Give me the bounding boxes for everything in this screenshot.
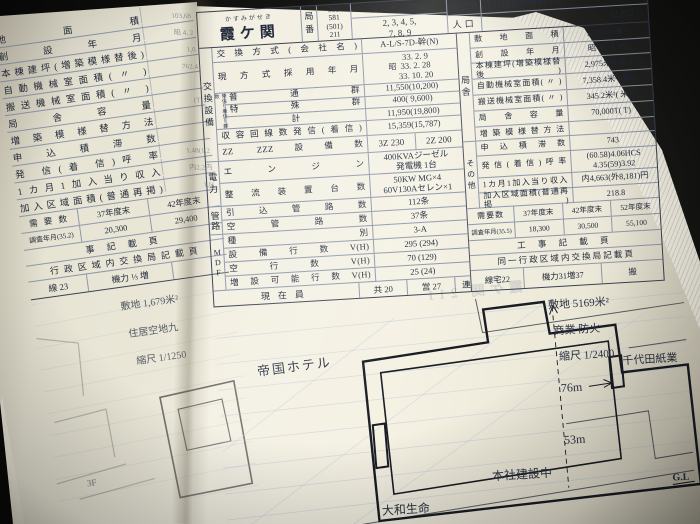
row-label: 局 舎 容 量 — [475, 109, 568, 123]
ground-level-label: G.L — [672, 472, 690, 484]
floor-label: 3F — [86, 477, 97, 488]
record-body: 交換設備 交換方式(会社名) A-L/S-7D-幹(N) 現方式採用年月 昭 — [199, 22, 664, 306]
demand-value: 30,500 — [563, 217, 612, 235]
exchange-column: 交換設備 交換方式(会社名) A-L/S-7D-幹(N) 現方式採用年月 昭 — [199, 34, 472, 307]
building-column: 局舎 敷 地 面 積5,169.01米² 創 設 年 月昭 32. 4. 25 … — [457, 22, 664, 291]
demand-col: 52年度末 — [610, 198, 659, 216]
row-label: 自動機械室面積( 〃 ) — [473, 77, 566, 91]
head-office-label: 本社建設中 — [492, 465, 553, 484]
row-value: 昭 33. 2. 9 33. 2. 28 33. 10. 20 — [362, 49, 459, 85]
yamato-life-label: 大和生命 — [381, 500, 430, 518]
demand-value: 55,100 — [611, 214, 660, 232]
scale-label: 縮尺 1/2400 — [559, 346, 616, 363]
width-dimension: 76m — [561, 380, 584, 395]
hotel-site-outline — [360, 293, 700, 521]
exchange-section: 交換設備 交換方式(会社名) A-L/S-7D-幹(N) 現方式採用年月 昭 — [199, 34, 462, 163]
demand-value: 18,300 — [514, 220, 563, 238]
exchange-record: かすみがせき 霞ケ関 局番 591 581 (501) 211 タンデム区画 2… — [196, 0, 678, 524]
exchange-record-table: かすみがせき 霞ケ関 局番 591 581 (501) 211 タンデム区画 2… — [196, 0, 665, 307]
demand-label: 需要数 — [467, 207, 514, 225]
chiyoda-paper-label: 千代田紙業 — [622, 350, 678, 367]
adopted-dates: 33. 2. 9 33. 2. 28 33. 10. 20 — [398, 51, 434, 82]
exchange-page-cell: 搬 — [601, 260, 664, 284]
office-name: 霞ケ関 — [219, 20, 280, 45]
bureau-number: 211 — [318, 30, 351, 40]
row-label: エ ン ジ ン — [219, 159, 368, 177]
height-dimension: 53m — [564, 432, 587, 447]
tandem-zone-cell: タンデム区画 2, 3, 4, 5, 7, 8, 9 — [351, 0, 449, 39]
ruled-lines — [214, 293, 695, 521]
site-area-label: 敷地 5169米² — [548, 294, 610, 312]
exchange-page-cell: 機力31増37 — [523, 263, 602, 288]
photo-of-open-register-book: 地 面 積103,68 創 設 年 月昭 4. 2 本棟建坪(増築模様替後)1,… — [0, 0, 700, 524]
row-label: 敷 地 面 積 — [470, 31, 563, 45]
row-label: 搬送機械室面積( 〃 ) — [474, 93, 567, 107]
row-label: 発信(着信)呼率 — [477, 157, 570, 171]
row-label: 現方式採用年月 — [214, 65, 363, 83]
zz-value: 3Z 230 — [368, 133, 415, 152]
demand-col: 42年度末 — [562, 201, 611, 219]
bureau-numbers: 591 581 (501) 211 — [317, 4, 353, 41]
zoning-label: 商業 防火 — [553, 321, 600, 338]
demand-col: 37年度末 — [513, 204, 562, 222]
row-label: 申 込 積 滞 数 — [476, 139, 569, 153]
value-line: 発電機 1台 — [396, 159, 437, 171]
site-map: 帝国ホテル 76m 53m 敷地 5169米² 商業 防火 縮尺 1/2400 … — [214, 285, 696, 524]
value-line: 4.35(59)3.92 — [593, 158, 636, 170]
survey-date: 調査年月(35.5) — [468, 223, 515, 241]
row-label: 整流装置台数 — [221, 182, 370, 200]
population-label: 人口 — [448, 14, 483, 33]
zz-value: 2Z 200 — [414, 130, 462, 149]
other-section: その他 申 込 積 滞 数743 発信(着信)呼率 (60.58)4.06HCS… — [463, 131, 659, 209]
era-mark: 昭 — [388, 63, 397, 72]
building-section: 局舎 敷 地 面 積5,169.01米² 創 設 年 月昭 32. 4. 25 … — [457, 22, 655, 142]
